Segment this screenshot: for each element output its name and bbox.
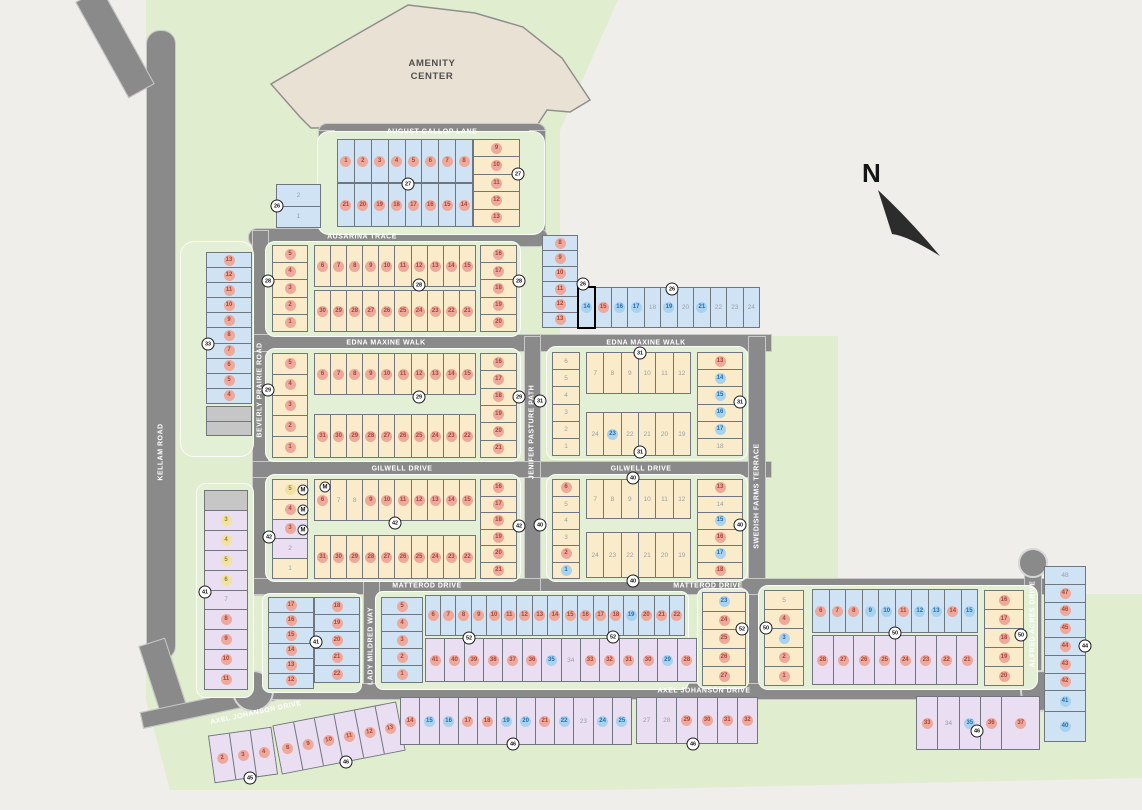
lot[interactable]: 16 — [481, 246, 516, 262]
lot[interactable]: 22 — [554, 698, 573, 744]
lot[interactable]: 25 — [612, 698, 631, 744]
lot[interactable]: 11 — [501, 596, 516, 635]
lot[interactable]: 23 — [443, 536, 459, 578]
lot[interactable]: 7 — [330, 480, 346, 520]
lot[interactable]: 3 — [553, 404, 579, 421]
lot[interactable]: 10 — [878, 590, 895, 632]
lot[interactable]: 8 — [346, 354, 362, 394]
lot[interactable]: 7 — [587, 353, 603, 393]
lot[interactable]: 17 — [627, 288, 643, 327]
lot[interactable]: 10 — [543, 266, 577, 281]
lot[interactable]: 19 — [481, 405, 516, 422]
lot[interactable]: 19 — [481, 297, 516, 314]
lot[interactable]: 13 — [427, 354, 443, 394]
lot[interactable]: 18 — [477, 698, 496, 744]
lot[interactable]: 7 — [440, 596, 455, 635]
lot[interactable]: 18 — [481, 388, 516, 405]
lot[interactable]: 20 — [481, 422, 516, 439]
lot[interactable]: 27 — [378, 415, 394, 457]
lot[interactable]: 17 — [481, 496, 516, 513]
lot-number: 10 — [381, 369, 392, 380]
lot[interactable]: 16 — [481, 354, 516, 370]
lot[interactable]: 24 — [587, 533, 603, 577]
lot[interactable]: 37 — [502, 639, 521, 681]
lot[interactable]: 4 — [382, 614, 422, 631]
lot[interactable]: 22 — [936, 636, 957, 684]
lot[interactable]: 5 — [765, 591, 803, 609]
lot[interactable]: 41 — [1045, 690, 1085, 711]
lot[interactable]: 3 — [273, 279, 307, 296]
lot[interactable]: 6 — [205, 570, 247, 590]
lot[interactable]: 18 — [608, 596, 623, 635]
lot[interactable]: 3 — [205, 510, 247, 530]
lot[interactable]: 8 — [205, 609, 247, 629]
lot[interactable]: 6 — [426, 596, 440, 635]
lot[interactable] — [207, 421, 251, 436]
lot[interactable]: 36 — [522, 639, 541, 681]
lot[interactable] — [207, 407, 251, 421]
lot[interactable]: 11 — [394, 354, 410, 394]
lot[interactable]: 3 — [553, 529, 579, 546]
lot[interactable]: 11 — [895, 590, 912, 632]
lot[interactable]: 10 — [207, 297, 251, 312]
lot[interactable]: 29 — [676, 698, 696, 743]
lot[interactable]: 34 — [561, 639, 580, 681]
lot[interactable]: 16 — [481, 480, 516, 496]
lot[interactable]: 6 — [813, 590, 829, 632]
lot[interactable]: 26 — [853, 636, 874, 684]
lot[interactable]: 32 — [599, 639, 618, 681]
lot[interactable]: 8 — [603, 480, 620, 518]
lot[interactable]: 30 — [315, 291, 330, 331]
lot[interactable]: 26 — [394, 536, 410, 578]
lot[interactable]: 21 — [535, 698, 554, 744]
lot[interactable]: 12 — [543, 296, 577, 311]
lot[interactable]: 1 — [338, 140, 354, 182]
lot[interactable]: 6 — [315, 246, 330, 286]
lot[interactable]: 17 — [698, 545, 742, 562]
lot[interactable]: 6 — [207, 358, 251, 373]
lot[interactable]: 8 — [603, 353, 620, 393]
lot[interactable]: 9 — [471, 596, 486, 635]
lot[interactable]: 7 — [829, 590, 846, 632]
lot[interactable]: 21 — [481, 562, 516, 579]
lot[interactable]: 18 — [481, 279, 516, 296]
lot[interactable]: 20 — [638, 596, 653, 635]
lot-selected[interactable]: 14 — [579, 288, 594, 327]
lot[interactable]: 19 — [673, 413, 690, 455]
lot[interactable]: 10 — [638, 480, 655, 518]
lot[interactable]: 7 — [330, 354, 346, 394]
lot[interactable]: 12 — [673, 353, 690, 393]
lot[interactable]: 13 — [543, 312, 577, 327]
lot[interactable]: 6 — [553, 353, 579, 369]
lot[interactable]: 13 — [427, 480, 443, 520]
lot[interactable]: 40 — [1045, 711, 1085, 741]
lot[interactable]: 23 — [703, 593, 745, 611]
lot[interactable] — [205, 491, 247, 510]
lot[interactable]: 22 — [459, 536, 475, 578]
lot[interactable]: 9 — [543, 250, 577, 265]
lot[interactable]: 11 — [394, 246, 410, 286]
lot[interactable]: 18 — [644, 288, 660, 327]
lot[interactable]: 41 — [426, 639, 444, 681]
lot[interactable]: 12 — [516, 596, 531, 635]
lot[interactable]: 30 — [330, 415, 346, 457]
lot[interactable]: 15 — [961, 590, 978, 632]
lot[interactable]: 11 — [655, 353, 672, 393]
lot[interactable]: 13 — [698, 353, 742, 369]
lot[interactable]: 21 — [459, 291, 475, 331]
lot[interactable]: 25 — [411, 536, 427, 578]
lot-number: 15 — [565, 610, 576, 621]
lot[interactable]: 16 — [577, 596, 592, 635]
lot-number: 15 — [715, 515, 726, 526]
lot[interactable]: 13 — [928, 590, 945, 632]
lot[interactable]: 21 — [956, 636, 977, 684]
lot[interactable]: 1 — [277, 206, 320, 228]
lot[interactable]: 33 — [580, 639, 599, 681]
lot[interactable]: 31 — [315, 415, 330, 457]
lot[interactable]: 27 — [378, 536, 394, 578]
lot[interactable]: 46 — [1045, 602, 1085, 620]
lot[interactable]: 27 — [833, 636, 854, 684]
lot[interactable]: 13 — [269, 658, 313, 673]
lot[interactable]: 30 — [638, 639, 657, 681]
lot[interactable]: 25 — [394, 291, 410, 331]
lot[interactable]: 14 — [547, 596, 562, 635]
lot[interactable]: 19 — [623, 596, 638, 635]
lot[interactable]: 19 — [371, 184, 388, 226]
street-label-alfred-acres-drive: ALFRED ACRES DRIVE — [1030, 581, 1037, 668]
lot-number: 34 — [945, 718, 952, 729]
lot[interactable]: 22 — [669, 596, 684, 635]
lot[interactable]: 21 — [654, 596, 669, 635]
lot[interactable]: 21 — [315, 648, 359, 665]
lot[interactable]: 4 — [205, 530, 247, 550]
lot[interactable]: 9 — [621, 353, 638, 393]
lot[interactable]: 35 — [541, 639, 560, 681]
lot[interactable]: 20 — [516, 698, 535, 744]
lot[interactable]: 28 — [346, 291, 362, 331]
lot[interactable]: 17 — [481, 370, 516, 387]
lot[interactable]: 14 — [269, 643, 313, 658]
lot[interactable]: 2 — [553, 421, 579, 438]
lot[interactable]: 32 — [737, 698, 757, 743]
lot[interactable]: 11 — [543, 281, 577, 296]
lot[interactable]: 47 — [1045, 584, 1085, 602]
lot[interactable]: 23 — [603, 533, 620, 577]
lot[interactable]: 4 — [207, 388, 251, 403]
lot[interactable]: 26 — [378, 291, 394, 331]
lot[interactable]: 31 — [619, 639, 638, 681]
lot[interactable]: 6 — [421, 140, 438, 182]
lot[interactable]: 17 — [593, 596, 608, 635]
lot[interactable]: 1 — [765, 666, 803, 685]
lot[interactable]: 8 — [543, 236, 577, 250]
lot[interactable]: 10 — [205, 649, 247, 669]
lot[interactable]: 28 — [813, 636, 833, 684]
lot[interactable]: 1 — [273, 436, 307, 457]
lot[interactable]: 4 — [553, 386, 579, 403]
lot[interactable]: 7 — [438, 140, 455, 182]
lot[interactable]: 12 — [673, 480, 690, 518]
lot[interactable]: 15 — [459, 354, 475, 394]
lot[interactable]: 28 — [656, 698, 676, 743]
lot[interactable]: 22 — [459, 415, 475, 457]
lot[interactable]: 27 — [362, 291, 378, 331]
lot[interactable]: 5 — [273, 246, 307, 262]
lot[interactable]: 13 — [532, 596, 547, 635]
lot[interactable]: 13 — [474, 209, 519, 226]
lot[interactable]: 9 — [621, 480, 638, 518]
lot[interactable]: 30 — [697, 698, 717, 743]
lot[interactable]: 20 — [985, 666, 1023, 685]
lot[interactable]: 10 — [378, 354, 394, 394]
lot[interactable]: 28 — [362, 415, 378, 457]
lot[interactable]: 20 — [481, 314, 516, 331]
lot[interactable]: 9 — [362, 246, 378, 286]
lot[interactable]: 14 — [443, 480, 459, 520]
lot[interactable]: 17 — [985, 609, 1023, 628]
lot[interactable]: 15 — [562, 596, 577, 635]
lot[interactable]: 2 — [765, 647, 803, 666]
lot[interactable]: 12 — [207, 267, 251, 282]
lot[interactable]: 21 — [481, 440, 516, 457]
lot[interactable]: 5 — [405, 140, 422, 182]
lot[interactable]: 23 — [443, 415, 459, 457]
lot[interactable]: 9 — [362, 480, 378, 520]
lot[interactable]: 15 — [419, 698, 438, 744]
lot[interactable]: 9 — [474, 140, 519, 156]
lot[interactable]: 21 — [638, 533, 655, 577]
lot[interactable]: 8 — [845, 590, 862, 632]
lot[interactable]: 2 — [273, 415, 307, 436]
lot[interactable]: 28 — [362, 536, 378, 578]
lot[interactable]: 8 — [346, 246, 362, 286]
lot[interactable]: 23 — [603, 413, 620, 455]
lot[interactable]: 17 — [698, 421, 742, 438]
lot[interactable]: 24 — [587, 413, 603, 455]
lot[interactable]: 15 — [459, 246, 475, 286]
lot[interactable]: 37 — [1001, 697, 1039, 749]
lot[interactable]: 19 — [315, 614, 359, 631]
lot[interactable]: 7 — [330, 246, 346, 286]
lot[interactable]: 15 — [438, 184, 455, 226]
lot[interactable]: 15 — [269, 627, 313, 642]
lot[interactable]: 5 — [205, 550, 247, 570]
lot[interactable]: 14 — [698, 496, 742, 513]
lot[interactable]: 14 — [944, 590, 961, 632]
lot[interactable]: 22 — [443, 291, 459, 331]
lot[interactable]: 20 — [481, 545, 516, 562]
lot[interactable]: 24 — [411, 291, 427, 331]
lot[interactable]: 5 — [382, 598, 422, 614]
lot[interactable]: 13 — [698, 480, 742, 496]
lot[interactable]: 24 — [593, 698, 612, 744]
lot[interactable]: 23 — [573, 698, 592, 744]
lot[interactable]: 18 — [315, 598, 359, 614]
lot[interactable]: 2 — [382, 648, 422, 665]
lot[interactable]: 18 — [698, 438, 742, 455]
lot[interactable]: 9 — [207, 312, 251, 327]
lot[interactable]: 3 — [273, 395, 307, 416]
lot[interactable]: 20 — [354, 184, 371, 226]
lot[interactable]: 16 — [439, 698, 458, 744]
lot[interactable]: 29 — [346, 415, 362, 457]
lot[interactable]: 1 — [553, 438, 579, 455]
lot[interactable]: 1 — [382, 665, 422, 682]
lot[interactable]: 26 — [703, 648, 745, 667]
lot[interactable]: 2 — [354, 140, 371, 182]
lot[interactable]: 1 — [553, 562, 579, 579]
block-marker: 31 — [734, 396, 747, 409]
lot[interactable]: 25 — [874, 636, 895, 684]
lot[interactable]: 21 — [693, 288, 709, 327]
lot[interactable]: 11 — [655, 480, 672, 518]
lot[interactable]: 19 — [673, 533, 690, 577]
lot[interactable]: 24 — [427, 415, 443, 457]
lot[interactable]: 18 — [388, 184, 405, 226]
lot-number: 12 — [519, 610, 530, 621]
lot[interactable]: 10 — [378, 246, 394, 286]
lot[interactable]: 10 — [486, 596, 501, 635]
lot[interactable]: 2 — [553, 545, 579, 562]
lot[interactable]: 11 — [205, 669, 247, 689]
lot[interactable]: 6 — [315, 354, 330, 394]
lot-strip: 654321 — [552, 479, 580, 579]
lot[interactable]: 12 — [411, 480, 427, 520]
lot[interactable]: 12 — [411, 354, 427, 394]
lot[interactable]: 22 — [315, 665, 359, 682]
lot[interactable]: 3 — [382, 631, 422, 648]
lot[interactable]: 8 — [346, 480, 362, 520]
lot[interactable]: 12 — [911, 590, 928, 632]
lot[interactable]: 14 — [698, 369, 742, 386]
lot[interactable]: 17 — [458, 698, 477, 744]
lot[interactable]: 20 — [655, 413, 672, 455]
lot[interactable]: 33 — [917, 697, 937, 749]
lot[interactable]: 13 — [427, 246, 443, 286]
lot[interactable]: 29 — [330, 291, 346, 331]
lot[interactable]: 2 — [273, 538, 307, 558]
lot[interactable]: 24 — [895, 636, 916, 684]
lot[interactable]: 26 — [394, 415, 410, 457]
lot[interactable]: 9 — [862, 590, 879, 632]
lot[interactable]: 17 — [269, 598, 313, 612]
lot[interactable]: 42 — [1045, 673, 1085, 691]
lot[interactable]: 22 — [710, 288, 726, 327]
lot[interactable]: 16 — [269, 612, 313, 627]
lot[interactable]: 30 — [330, 536, 346, 578]
lot[interactable]: 18 — [698, 562, 742, 579]
lot-number: 16 — [493, 357, 504, 368]
lot[interactable]: 15 — [594, 288, 610, 327]
lot[interactable]: 29 — [657, 639, 676, 681]
lot[interactable]: 17 — [481, 262, 516, 279]
lot[interactable]: 20 — [655, 533, 672, 577]
lot[interactable]: 11 — [207, 282, 251, 297]
lot[interactable]: 31 — [717, 698, 737, 743]
lot[interactable]: 16 — [421, 184, 438, 226]
lot[interactable]: 24 — [427, 536, 443, 578]
lot[interactable]: 24 — [743, 288, 759, 327]
lot[interactable]: 2 — [273, 297, 307, 314]
lot-number: 19 — [493, 532, 504, 543]
lot[interactable]: 28 — [677, 639, 696, 681]
lot[interactable]: 5 — [553, 496, 579, 513]
lot[interactable]: 1 — [273, 558, 307, 578]
lot[interactable]: 16 — [985, 591, 1023, 609]
lot[interactable]: 15 — [459, 480, 475, 520]
lot[interactable]: 36 — [980, 697, 1001, 749]
lot[interactable]: 14 — [401, 698, 419, 744]
lot[interactable]: 12 — [474, 191, 519, 208]
lot[interactable]: 22 — [621, 533, 638, 577]
lot[interactable]: 31 — [315, 536, 330, 578]
lot[interactable]: 25 — [411, 415, 427, 457]
lot[interactable]: 6 — [553, 480, 579, 496]
lot[interactable]: 45 — [1045, 619, 1085, 637]
lot[interactable]: 29 — [346, 536, 362, 578]
lot[interactable]: 8 — [455, 596, 470, 635]
lot[interactable]: 10 — [378, 480, 394, 520]
lot[interactable]: 20 — [677, 288, 693, 327]
lot[interactable]: 5 — [207, 373, 251, 388]
lot[interactable]: 35 — [959, 697, 980, 749]
lot[interactable]: 27 — [703, 666, 745, 685]
lot[interactable]: 18 — [481, 512, 516, 529]
lot[interactable]: 3 — [371, 140, 388, 182]
lot[interactable]: 19 — [481, 529, 516, 546]
lot[interactable]: 5 — [553, 369, 579, 386]
lot[interactable]: 4 — [553, 512, 579, 529]
lot[interactable]: 43 — [1045, 655, 1085, 673]
lot[interactable]: 27 — [637, 698, 656, 743]
lot[interactable]: 9 — [362, 354, 378, 394]
lot[interactable]: 11 — [394, 480, 410, 520]
lot[interactable]: 4 — [388, 140, 405, 182]
lot[interactable]: 23 — [427, 291, 443, 331]
lot[interactable]: 13 — [207, 253, 251, 267]
lot[interactable]: 16 — [611, 288, 627, 327]
lot[interactable]: 12 — [269, 673, 313, 688]
lot[interactable]: 40 — [444, 639, 463, 681]
lot[interactable]: 48 — [1045, 567, 1085, 584]
lot[interactable]: 21 — [338, 184, 354, 226]
lot-number: 24 — [592, 550, 599, 561]
lot[interactable]: 4 — [273, 262, 307, 279]
lot[interactable]: 14 — [443, 354, 459, 394]
lot[interactable]: 34 — [937, 697, 958, 749]
lot[interactable]: 23 — [915, 636, 936, 684]
lot[interactable]: 39 — [464, 639, 483, 681]
lot[interactable]: 1 — [273, 314, 307, 331]
lot[interactable]: 5 — [273, 354, 307, 374]
lot[interactable]: 14 — [455, 184, 472, 226]
lot[interactable]: 19 — [985, 647, 1023, 666]
lot[interactable]: 16 — [698, 529, 742, 546]
lot[interactable]: 38 — [483, 639, 502, 681]
lot[interactable]: 8 — [455, 140, 472, 182]
lot[interactable]: 7 — [587, 480, 603, 518]
lot[interactable]: 14 — [443, 246, 459, 286]
lot[interactable]: 23 — [726, 288, 742, 327]
lot[interactable]: 2 — [277, 185, 320, 206]
lot[interactable]: 9 — [205, 629, 247, 649]
lot-number: 2 — [561, 548, 572, 559]
lot[interactable]: 4 — [273, 374, 307, 395]
